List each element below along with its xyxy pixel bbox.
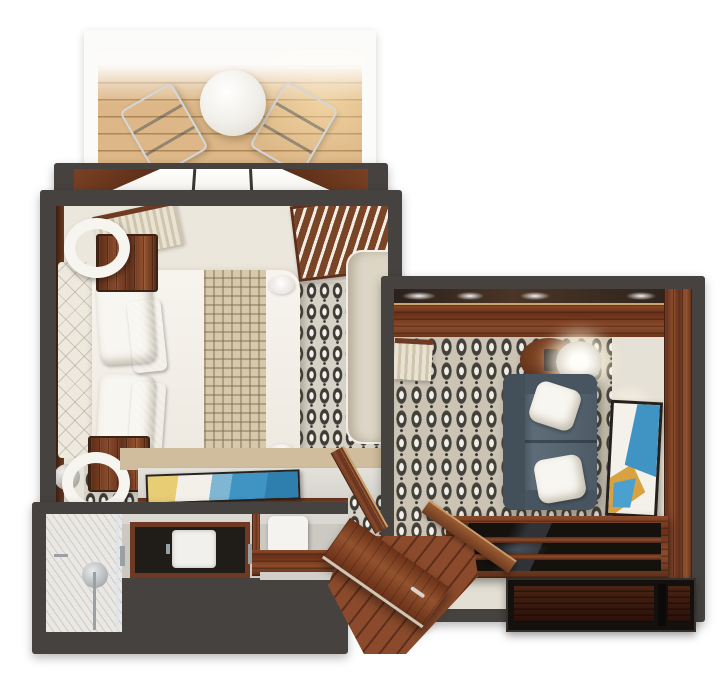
towel-bar-left — [120, 546, 125, 566]
ceiling-light — [402, 292, 436, 300]
console-divider — [658, 584, 666, 626]
sofa-backrest — [503, 374, 525, 510]
sofa-cushion-seam — [525, 440, 597, 443]
storage-console — [506, 578, 696, 632]
ceiling-light — [456, 292, 484, 300]
toilet — [268, 516, 308, 554]
vanity — [130, 522, 250, 578]
suite-floorplan — [0, 0, 726, 675]
sofa-pillow — [533, 453, 588, 505]
living-right-wall-wood — [664, 289, 692, 609]
wood-cabinet-band — [394, 303, 692, 341]
shower-pole — [93, 572, 96, 630]
flat-artwork — [146, 469, 301, 504]
living-curtain — [394, 338, 433, 381]
ceiling-light — [626, 292, 656, 300]
ceiling-light — [520, 292, 550, 300]
shower-handle — [54, 554, 68, 557]
bed-headboard — [58, 262, 92, 458]
balcony-round-table — [200, 70, 266, 136]
shower-glass — [116, 514, 119, 632]
sink — [172, 530, 216, 568]
duvet-fold — [268, 276, 294, 294]
console-shelf — [514, 586, 654, 622]
shower — [46, 514, 122, 632]
ring-lamp-top — [64, 218, 130, 278]
ceiling-band — [394, 289, 692, 303]
faucet — [166, 544, 170, 554]
wall-art — [605, 400, 663, 519]
door-handle — [410, 586, 425, 598]
console-shelf-right — [668, 586, 690, 622]
art-blue-patch — [624, 404, 660, 478]
